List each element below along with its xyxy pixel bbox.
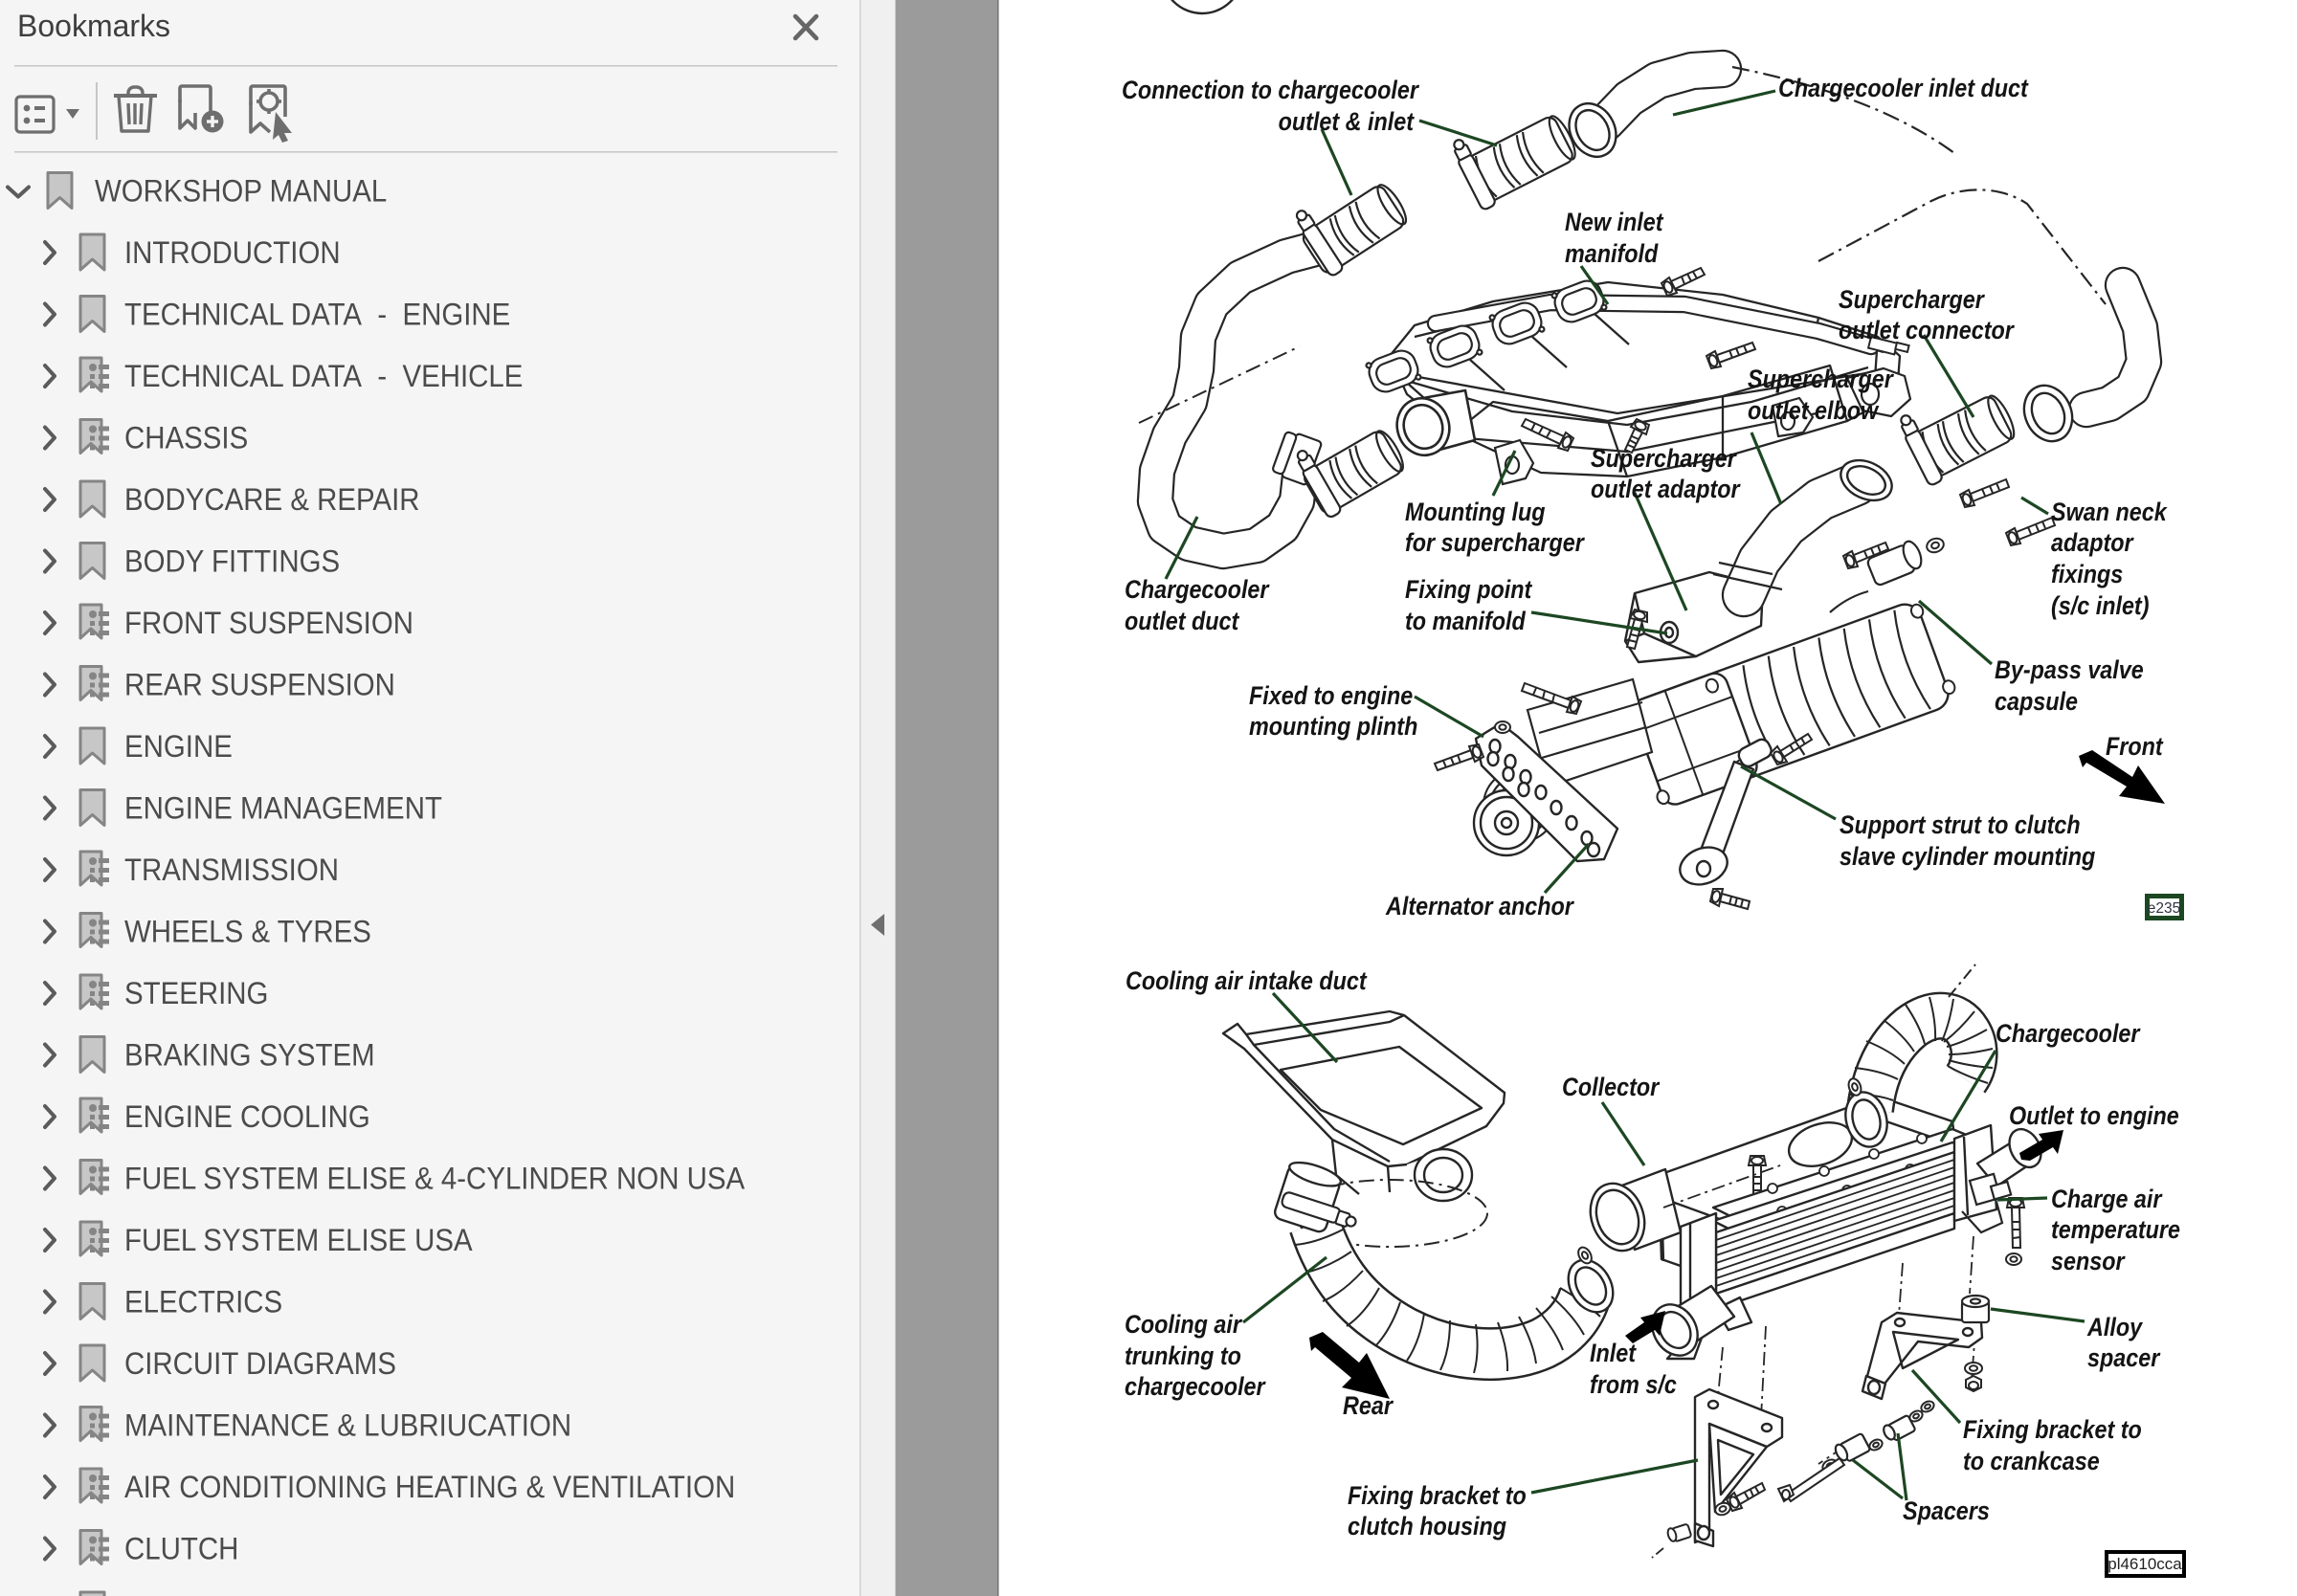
svg-text:Alternator anchor: Alternator anchor <box>1385 892 1574 920</box>
svg-text:REAR SUSPENSION: REAR SUSPENSION <box>124 667 395 701</box>
svg-text:fixings: fixings <box>2051 560 2123 588</box>
svg-text:capsule: capsule <box>1995 687 2078 716</box>
svg-text:Fixing bracket to: Fixing bracket to <box>1963 1415 2142 1444</box>
svg-text:Alloy: Alloy <box>2086 1313 2144 1341</box>
svg-text:outlet & inlet: outlet & inlet <box>1279 107 1416 136</box>
svg-text:outlet adaptor: outlet adaptor <box>1591 475 1741 503</box>
svg-text:FUEL SYSTEM ELISE USA: FUEL SYSTEM ELISE USA <box>124 1223 473 1257</box>
svg-text:TECHNICAL DATA - VEHICLE: TECHNICAL DATA - VEHICLE <box>124 359 523 393</box>
svg-text:New inlet: New inlet <box>1565 208 1664 236</box>
svg-text:CLUTCH: CLUTCH <box>124 1531 238 1565</box>
svg-text:Cooling air: Cooling air <box>1125 1310 1242 1339</box>
svg-text:Front: Front <box>2106 732 2164 761</box>
svg-text:FRONT SUSPENSION: FRONT SUSPENSION <box>124 606 413 640</box>
svg-text:Bookmarks: Bookmarks <box>17 9 170 43</box>
svg-text:INTRODUCTION: INTRODUCTION <box>124 235 341 270</box>
svg-text:BRAKING SYSTEM: BRAKING SYSTEM <box>124 1037 375 1072</box>
svg-text:BODY FITTINGS: BODY FITTINGS <box>124 543 340 578</box>
svg-text:Mounting lug: Mounting lug <box>1405 498 1546 526</box>
svg-text:ENGINE: ENGINE <box>124 729 233 764</box>
svg-text:Fixing point: Fixing point <box>1405 575 1533 604</box>
svg-text:slave cylinder mounting: slave cylinder mounting <box>1840 842 2095 871</box>
svg-text:Chargecooler: Chargecooler <box>1996 1019 2141 1048</box>
svg-text:Fixing bracket to: Fixing bracket to <box>1348 1481 1527 1510</box>
svg-text:outlet duct: outlet duct <box>1125 607 1240 635</box>
svg-text:ELECTRICS: ELECTRICS <box>124 1284 282 1319</box>
svg-text:for supercharger: for supercharger <box>1405 528 1585 557</box>
svg-text:chargecooler: chargecooler <box>1125 1372 1266 1401</box>
svg-text:to crankcase: to crankcase <box>1963 1447 2100 1475</box>
svg-text:Supercharger: Supercharger <box>1748 365 1894 393</box>
svg-text:TRANSMISSION: TRANSMISSION <box>124 853 339 887</box>
svg-text:CIRCUIT DIAGRAMS: CIRCUIT DIAGRAMS <box>124 1346 396 1381</box>
svg-text:WHEELS & TYRES: WHEELS & TYRES <box>124 914 371 948</box>
svg-text:temperature: temperature <box>2051 1215 2180 1244</box>
svg-text:ENGINE MANAGEMENT: ENGINE MANAGEMENT <box>124 790 442 825</box>
svg-text:Rear: Rear <box>1343 1391 1394 1420</box>
svg-text:mounting plinth: mounting plinth <box>1249 712 1417 741</box>
svg-text:adaptor: adaptor <box>2051 528 2134 557</box>
svg-text:Chargecooler inlet duct: Chargecooler inlet duct <box>1778 74 2029 102</box>
svg-text:Outlet to engine: Outlet to engine <box>2009 1101 2179 1130</box>
svg-text:outlet elbow: outlet elbow <box>1748 396 1879 425</box>
svg-text:WORKSHOP MANUAL: WORKSHOP MANUAL <box>95 173 387 208</box>
svg-text:Spacers: Spacers <box>1903 1496 1990 1525</box>
svg-text:BODYCARE & REPAIR: BODYCARE & REPAIR <box>124 482 420 517</box>
svg-text:Swan neck: Swan neck <box>2051 498 2168 526</box>
svg-text:Inlet: Inlet <box>1590 1339 1637 1367</box>
svg-text:spacer: spacer <box>2087 1343 2160 1372</box>
svg-text:outlet connector: outlet connector <box>1839 316 2015 344</box>
svg-text:FUEL SYSTEM ELISE & 4-CYLINDER: FUEL SYSTEM ELISE & 4-CYLINDER NON USA <box>124 1161 746 1195</box>
svg-text:Chargecooler: Chargecooler <box>1125 575 1270 604</box>
svg-text:(s/c inlet): (s/c inlet) <box>2051 591 2149 620</box>
svg-text:Connection to chargecooler: Connection to chargecooler <box>1122 76 1419 104</box>
svg-text:Cooling air intake duct: Cooling air intake duct <box>1126 966 1368 995</box>
svg-text:Supercharger: Supercharger <box>1591 444 1737 473</box>
svg-text:pl4610cca: pl4610cca <box>2107 1555 2182 1573</box>
svg-text:ENGINE COOLING: ENGINE COOLING <box>124 1099 370 1134</box>
svg-text:TECHNICAL DATA - ENGINE: TECHNICAL DATA - ENGINE <box>124 297 510 331</box>
svg-text:Supercharger: Supercharger <box>1839 285 1985 314</box>
svg-text:CHASSIS: CHASSIS <box>124 420 248 454</box>
svg-text:to manifold: to manifold <box>1405 607 1526 635</box>
svg-text:Charge air: Charge air <box>2051 1185 2163 1213</box>
svg-text:Fixed to engine: Fixed to engine <box>1249 681 1413 710</box>
svg-text:manifold: manifold <box>1565 239 1659 268</box>
svg-text:Support strut to clutch: Support strut to clutch <box>1840 810 2081 839</box>
svg-text:clutch housing: clutch housing <box>1348 1512 1506 1541</box>
svg-text:from s/c: from s/c <box>1590 1370 1677 1399</box>
svg-text:STEERING: STEERING <box>124 976 268 1010</box>
svg-text:sensor: sensor <box>2051 1247 2126 1275</box>
svg-text:Collector: Collector <box>1562 1073 1660 1101</box>
svg-text:By-pass valve: By-pass valve <box>1995 655 2144 684</box>
svg-text:trunking to: trunking to <box>1125 1341 1241 1370</box>
svg-text:e235: e235 <box>2148 900 2180 917</box>
svg-text:AIR CONDITIONING HEATING & VEN: AIR CONDITIONING HEATING & VENTILATION <box>124 1470 735 1504</box>
svg-text:MAINTENANCE & LUBRIUCATION: MAINTENANCE & LUBRIUCATION <box>124 1408 571 1442</box>
